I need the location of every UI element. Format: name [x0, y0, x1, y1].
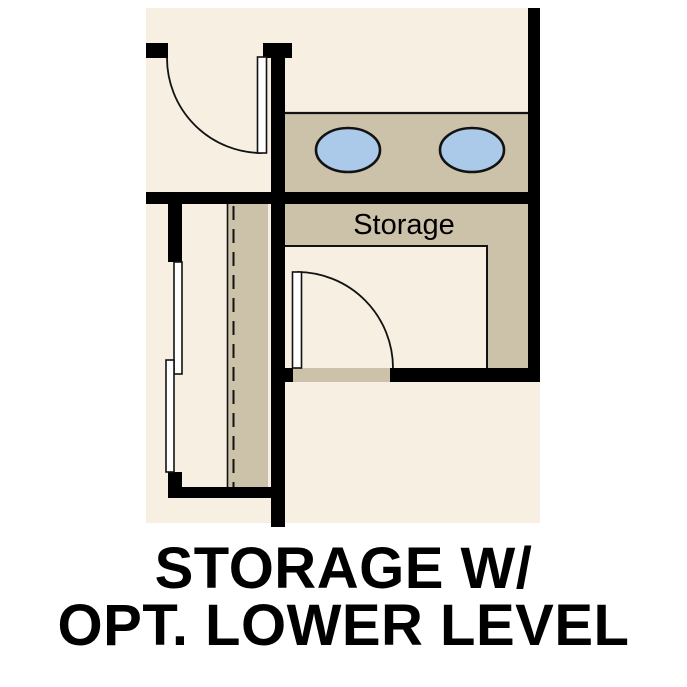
wall-left-room-stub-top — [168, 204, 182, 262]
wall-top-left-door-stub — [146, 43, 168, 58]
caption-line-1: STORAGE W/ — [0, 540, 687, 597]
floor-plan-figure: Storage STORAGE W/ OPT. LOWER LEVEL — [0, 0, 687, 687]
wall-storage-bottom-stub — [271, 368, 293, 382]
wall-vertical-main — [271, 43, 285, 527]
door-leaf-storage — [293, 272, 302, 368]
sink-right — [440, 128, 504, 172]
plan-caption: STORAGE W/ OPT. LOWER LEVEL — [0, 540, 687, 654]
caption-line-2: OPT. LOWER LEVEL — [0, 597, 687, 654]
bypass-door-panel-left — [166, 360, 174, 472]
room-label-storage: Storage — [353, 209, 455, 241]
wall-right-exterior — [528, 8, 540, 382]
wall-horizontal-main — [146, 192, 540, 204]
wall-left-room-bottom — [168, 487, 285, 498]
bypass-door-panel-right — [174, 262, 182, 374]
storage-floor-inset — [285, 245, 488, 368]
floor-plan-drawing: Storage — [0, 0, 687, 540]
wall-storage-bottom — [390, 368, 540, 382]
sink-left — [316, 128, 380, 172]
door-leaf-upper-left — [258, 57, 267, 153]
